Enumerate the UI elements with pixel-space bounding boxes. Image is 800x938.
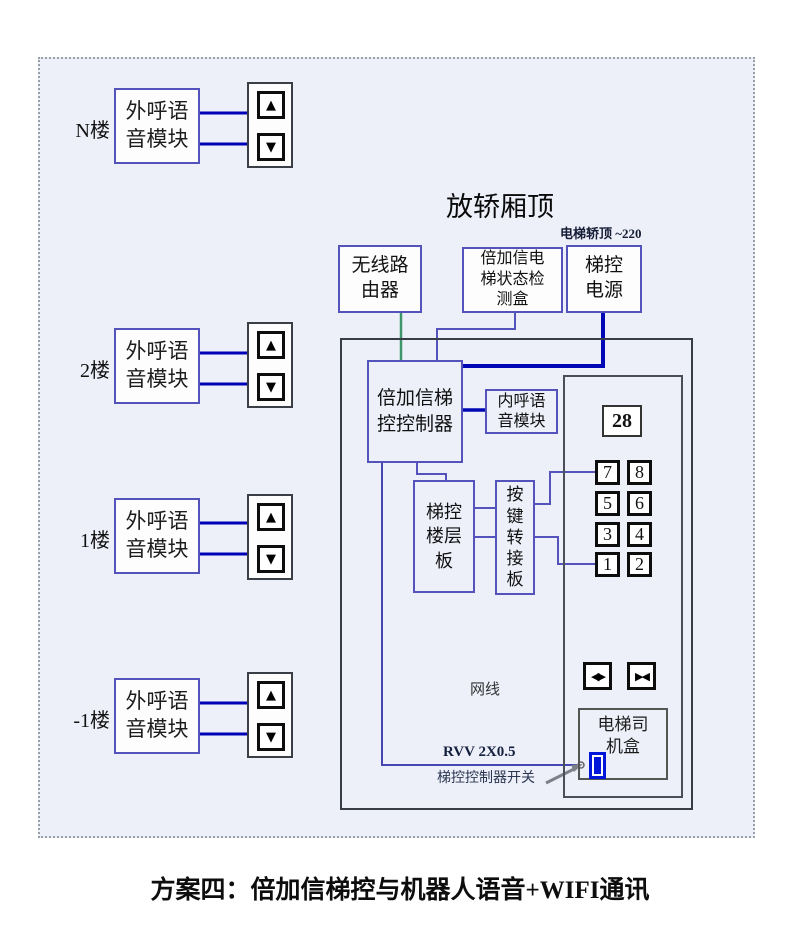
elevator-control-power-box: 梯控 电源 (566, 245, 642, 313)
hall-call-panel-1: ▲ ▼ (247, 494, 293, 580)
box-text-line: 倍加信电 (480, 249, 544, 269)
key-2: 2 (627, 552, 652, 577)
down-call-button: ▼ (257, 133, 285, 161)
elevator-controller-box: 倍加信梯 控控制器 (367, 360, 463, 463)
box-text-line: 无线路 (351, 254, 408, 279)
key-1: 1 (595, 552, 620, 577)
hall-call-panel-2: ▲ ▼ (247, 322, 293, 408)
box-text-line: 板 (435, 549, 453, 573)
module-text-line: 外呼语 (126, 338, 189, 366)
key-3: 3 (595, 522, 620, 547)
hall-call-panel-n: ▲ ▼ (247, 82, 293, 168)
down-arrow-icon: ▼ (266, 731, 276, 744)
box-text-line: 楼层 (426, 524, 462, 548)
box-text-line: 电源 (585, 279, 623, 304)
module-text-line: 音模块 (126, 126, 189, 154)
key-8: 8 (627, 460, 652, 485)
close-door-button: ▶◀ (627, 662, 656, 690)
box-text-line: 梯控 (426, 500, 462, 524)
module-text-line: 音模块 (126, 536, 189, 564)
box-text-line: 梯状态检 (480, 270, 544, 290)
module-text-line: 外呼语 (126, 688, 189, 716)
floor-label-n: N楼 (40, 114, 110, 143)
wireless-router-box: 无线路 由器 (338, 245, 422, 313)
floor-label-2: 2楼 (40, 354, 110, 383)
rvv-cable-label: RVV 2X0.5 (443, 744, 516, 761)
controller-switch (589, 752, 606, 779)
network-cable-label: 网线 (470, 678, 500, 699)
scheme-caption: 方案四：倍加信梯控与机器人语音+WIFI通讯 (0, 870, 800, 906)
up-call-button: ▲ (257, 331, 285, 359)
down-arrow-icon: ▼ (266, 141, 276, 154)
module-text-line: 音模块 (126, 716, 189, 744)
floor-board-box: 梯控 楼层 板 (413, 480, 475, 593)
module-text-line: 外呼语 (126, 98, 189, 126)
box-text-line: 测盒 (496, 290, 528, 310)
key-5: 5 (595, 491, 620, 516)
down-call-button: ▼ (257, 373, 285, 401)
hall-call-panel-minus1: ▲ ▼ (247, 672, 293, 758)
close-door-icon: ▶◀ (635, 670, 648, 683)
key-adapter-board-box: 按 键 转 接 板 (495, 480, 535, 595)
elevator-status-detector-box: 倍加信电 梯状态检 测盒 (462, 247, 563, 313)
module-text-line: 音模块 (126, 366, 189, 394)
down-call-button: ▼ (257, 545, 285, 573)
up-call-button: ▲ (257, 91, 285, 119)
box-text-char: 按 (507, 484, 524, 505)
controller-switch-label: 梯控控制器开关 (437, 767, 535, 787)
outdoor-voice-module-n: 外呼语 音模块 (114, 88, 200, 164)
down-call-button: ▼ (257, 723, 285, 751)
box-text-char: 转 (507, 527, 524, 548)
down-arrow-icon: ▼ (266, 381, 276, 394)
indoor-voice-module-box: 内呼语 音模块 (485, 389, 558, 434)
open-door-button: ◀▶ (583, 662, 612, 690)
box-text-line: 倍加信梯 (377, 386, 453, 412)
box-text-line: 音模块 (497, 412, 545, 432)
section-title: 放轿厢顶 (390, 185, 610, 224)
outdoor-voice-module-1: 外呼语 音模块 (114, 498, 200, 574)
box-text-char: 板 (507, 569, 524, 590)
box-text-line: 由器 (361, 279, 399, 304)
up-arrow-icon: ▲ (266, 511, 276, 524)
up-arrow-icon: ▲ (266, 339, 276, 352)
open-door-icon: ◀▶ (591, 670, 604, 683)
schematic-canvas: N楼 外呼语 音模块 ▲ ▼ 2楼 外呼语 音模块 ▲ ▼ 1楼 外呼语 音模块… (0, 0, 800, 938)
box-text-char: 键 (507, 506, 524, 527)
module-text-line: 外呼语 (126, 508, 189, 536)
key-7: 7 (595, 460, 620, 485)
floor-display: 28 (602, 405, 642, 437)
box-text-char: 接 (507, 548, 524, 569)
box-text-line: 梯控 (585, 254, 623, 279)
up-arrow-icon: ▲ (266, 689, 276, 702)
key-6: 6 (627, 491, 652, 516)
switch-indicator (594, 757, 601, 774)
outdoor-voice-module-minus1: 外呼语 音模块 (114, 678, 200, 754)
floor-label-1: 1楼 (40, 524, 110, 553)
down-arrow-icon: ▼ (266, 553, 276, 566)
up-call-button: ▲ (257, 681, 285, 709)
floor-module-wires (200, 113, 247, 734)
floor-label-minus1: -1楼 (40, 704, 110, 733)
box-text-line: 内呼语 (497, 392, 545, 412)
box-text-line: 控控制器 (377, 412, 453, 438)
outdoor-voice-module-2: 外呼语 音模块 (114, 328, 200, 404)
key-4: 4 (627, 522, 652, 547)
up-arrow-icon: ▲ (266, 99, 276, 112)
up-call-button: ▲ (257, 503, 285, 531)
power-supply-note: 电梯轿顶 ~220 (560, 223, 670, 242)
box-text-line: 电梯司 (580, 714, 666, 736)
